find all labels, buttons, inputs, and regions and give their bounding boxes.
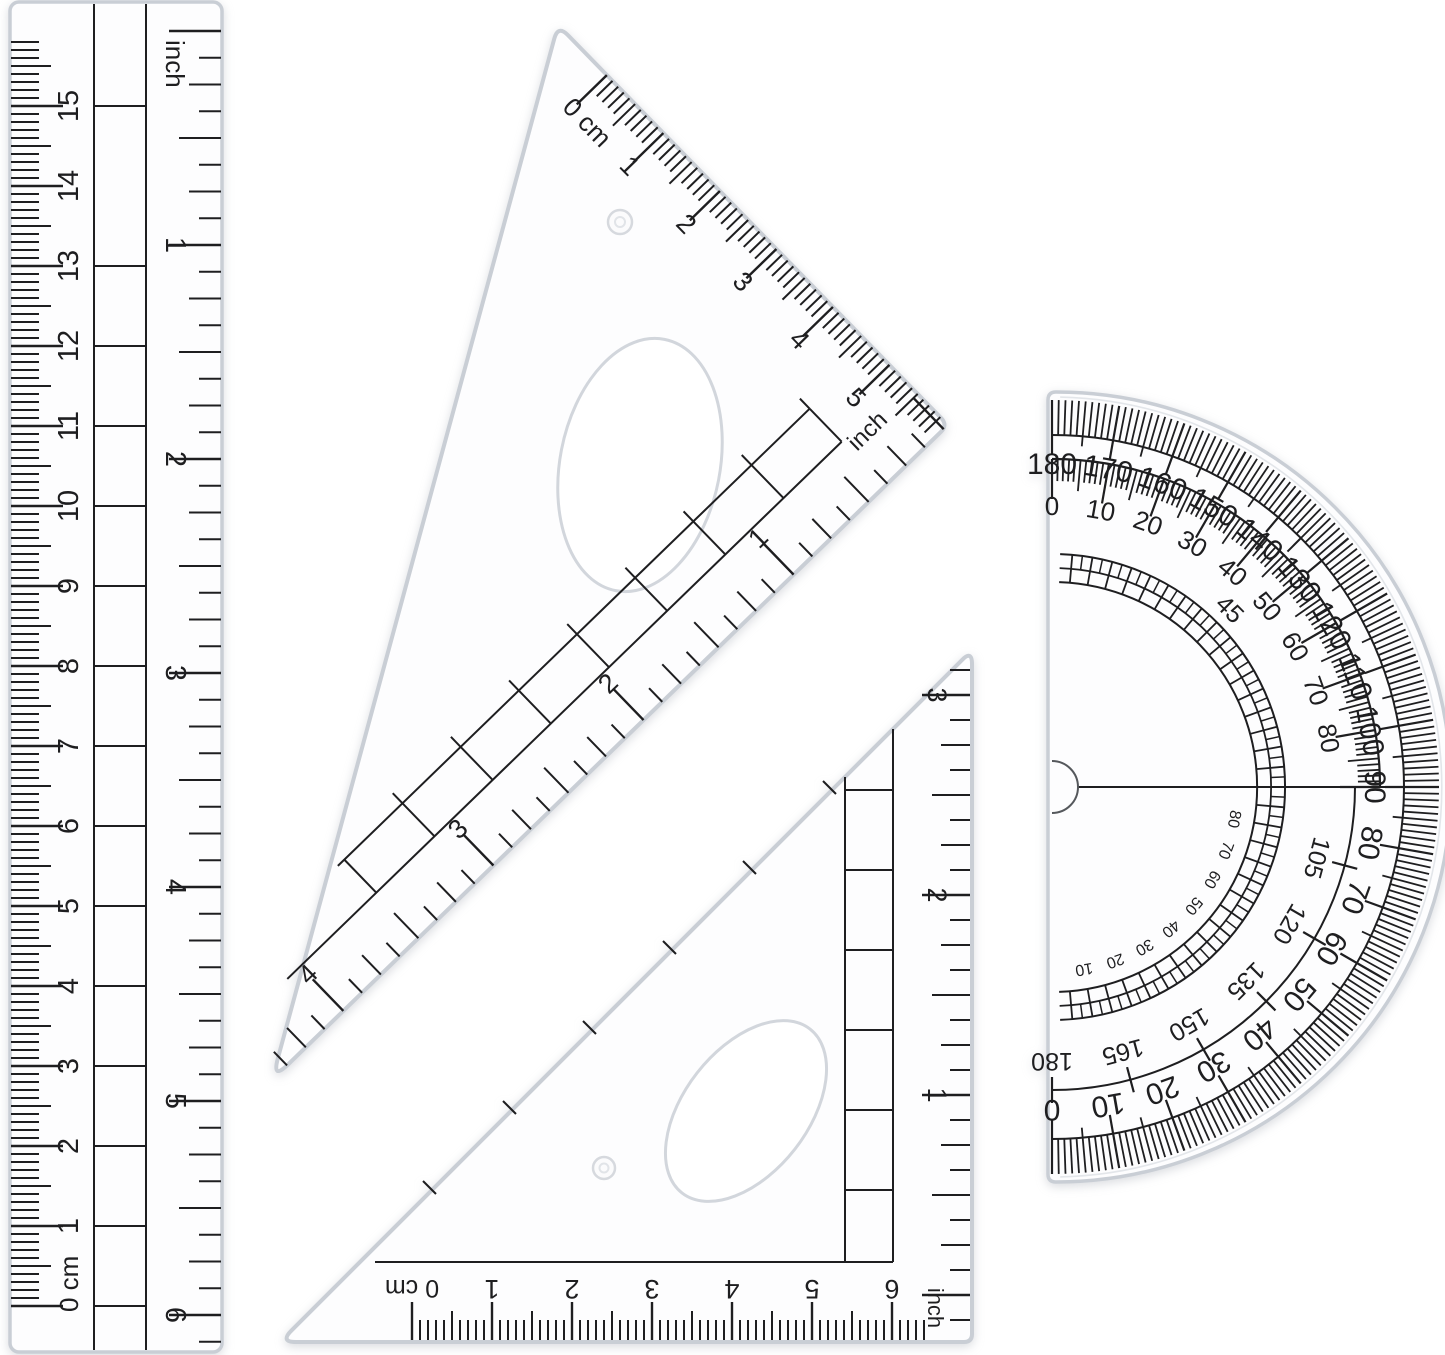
ruler: 0 cm123456789101112131415inch123456 xyxy=(10,2,222,1352)
tick-mark xyxy=(1068,459,1069,481)
scale-number: 2 xyxy=(564,1274,579,1304)
inch-label: inch xyxy=(160,40,190,88)
scale-number: 2 xyxy=(53,1138,85,1154)
scale-number: 6 xyxy=(884,1274,899,1304)
scale-number: 2 xyxy=(159,451,191,467)
tick-mark xyxy=(1404,799,1439,800)
tick-mark xyxy=(1064,400,1065,435)
scale-number: 80 xyxy=(1350,824,1388,863)
tick-mark xyxy=(1404,793,1439,794)
scale-number: 3 xyxy=(53,1058,85,1074)
tick-mark xyxy=(1358,770,1380,771)
tick-mark xyxy=(1271,797,1285,798)
injection-mark xyxy=(593,1157,615,1179)
scale-number: 80 xyxy=(1311,721,1346,755)
scale-number: 4 xyxy=(53,978,85,994)
scale-number: 10 xyxy=(1089,1085,1128,1123)
scale-number: 6 xyxy=(53,818,85,834)
scale-number: 0 xyxy=(1045,491,1059,521)
scale-number: 80 xyxy=(1224,809,1244,830)
scale-number: 1 xyxy=(922,1087,952,1102)
scale-number: 5 xyxy=(53,898,85,914)
scale-number: 8 xyxy=(53,658,85,674)
protractor: 1801701601501401301201101009080706050403… xyxy=(1027,392,1445,1182)
scale-number: 4 xyxy=(159,879,191,895)
scale-number: 1 xyxy=(484,1274,499,1304)
scale-number: 3 xyxy=(159,665,191,681)
tick-mark xyxy=(1063,459,1064,481)
scale-number: 14 xyxy=(53,170,85,202)
tick-mark xyxy=(1271,777,1285,778)
tick-mark xyxy=(1058,1139,1059,1174)
scale-number: 3 xyxy=(644,1274,659,1304)
geometry-set-photo: 0 cm123456789101112131415inch123456 0 cm… xyxy=(0,0,1445,1355)
scale-number: 1 xyxy=(53,1218,85,1234)
scale-number: 6 xyxy=(159,1307,191,1323)
scale-number: 2 xyxy=(922,887,952,902)
tick-mark xyxy=(1358,776,1380,777)
inch-label: inch xyxy=(923,1288,948,1328)
scale-number: 1 xyxy=(159,237,191,253)
zero-cm-label: 0 cm xyxy=(54,1256,84,1312)
scale-number: 3 xyxy=(922,687,952,702)
scale-number: 10 xyxy=(53,490,85,522)
tick-mark xyxy=(1404,780,1439,781)
scale-number: 4 xyxy=(724,1274,739,1304)
scale-number: 7 xyxy=(53,738,85,754)
scale-number: 13 xyxy=(53,250,85,282)
scale-number: 10 xyxy=(1084,493,1118,528)
scale-number: 11 xyxy=(53,411,85,441)
zero-cm-label: 0 cm xyxy=(385,1274,439,1302)
scale-number: 180 xyxy=(1031,1047,1073,1075)
scale-number: 5 xyxy=(804,1274,819,1304)
scale-number: 10 xyxy=(1074,959,1095,979)
tick-mark xyxy=(1064,1139,1065,1174)
injection-mark xyxy=(608,210,632,234)
scale-number: 9 xyxy=(53,578,85,594)
scale-number: 12 xyxy=(53,330,85,362)
scale-number: 15 xyxy=(53,90,85,122)
tick-mark xyxy=(1058,400,1059,435)
scale-number: 5 xyxy=(159,1093,191,1109)
tick-mark xyxy=(1404,773,1439,774)
